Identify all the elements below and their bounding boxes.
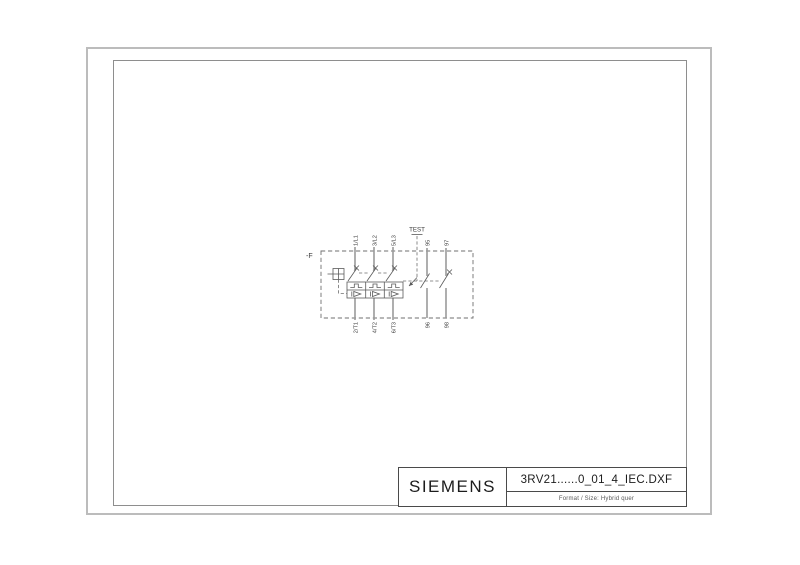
svg-text:97: 97 [445,240,451,246]
trip-unit-box [347,282,403,298]
breaker-enclosure-dashed-box [321,251,473,318]
siemens-logo: SIEMENS [399,468,507,506]
device-tag-label: -F [306,253,313,260]
format-size-line: Format / Size: Hybrid quer [507,492,686,506]
circuit-diagram: -F [298,216,482,342]
magnetic-release-icon-1 [352,292,361,297]
svg-text:98: 98 [445,322,451,328]
svg-text:5/L3: 5/L3 [392,235,398,246]
magnetic-release-icon-3 [389,292,398,297]
main-pole-bottom-labels: 2/T1 4/T2 6/T3 [354,322,398,333]
title-block: SIEMENS 3RV21......0_01_4_IEC.DXF Format… [398,467,687,507]
thermal-release-icon-2 [369,284,381,288]
title-block-right: 3RV21......0_01_4_IEC.DXF Format / Size:… [507,468,686,506]
svg-text:4/T2: 4/T2 [373,322,379,333]
test-label: TEST [409,227,425,234]
aux-top-labels: 95 97 [426,240,451,246]
test-lever-icon [409,278,417,287]
svg-text:1/L1: 1/L1 [354,235,360,246]
svg-text:95: 95 [426,240,432,246]
drawing-filename: 3RV21......0_01_4_IEC.DXF [507,468,686,492]
main-pole-conductors [355,247,393,320]
svg-text:96: 96 [426,322,432,328]
svg-text:3/L2: 3/L2 [373,235,379,246]
aux-bottom-labels: 96 98 [426,322,451,328]
manual-operator-icon [328,269,348,294]
aux-contact-conductors [427,248,446,318]
test-actuator: TEST [409,227,425,282]
svg-text:6/T3: 6/T3 [392,322,398,333]
thermal-release-icon-3 [388,284,400,288]
thermal-release-icon-1 [350,284,362,288]
main-pole-top-labels: 1/L1 3/L2 5/L3 [354,235,398,246]
breaker-cross-icon-aux [447,270,452,275]
svg-text:2/T1: 2/T1 [354,322,360,333]
magnetic-release-icon-2 [371,292,380,297]
